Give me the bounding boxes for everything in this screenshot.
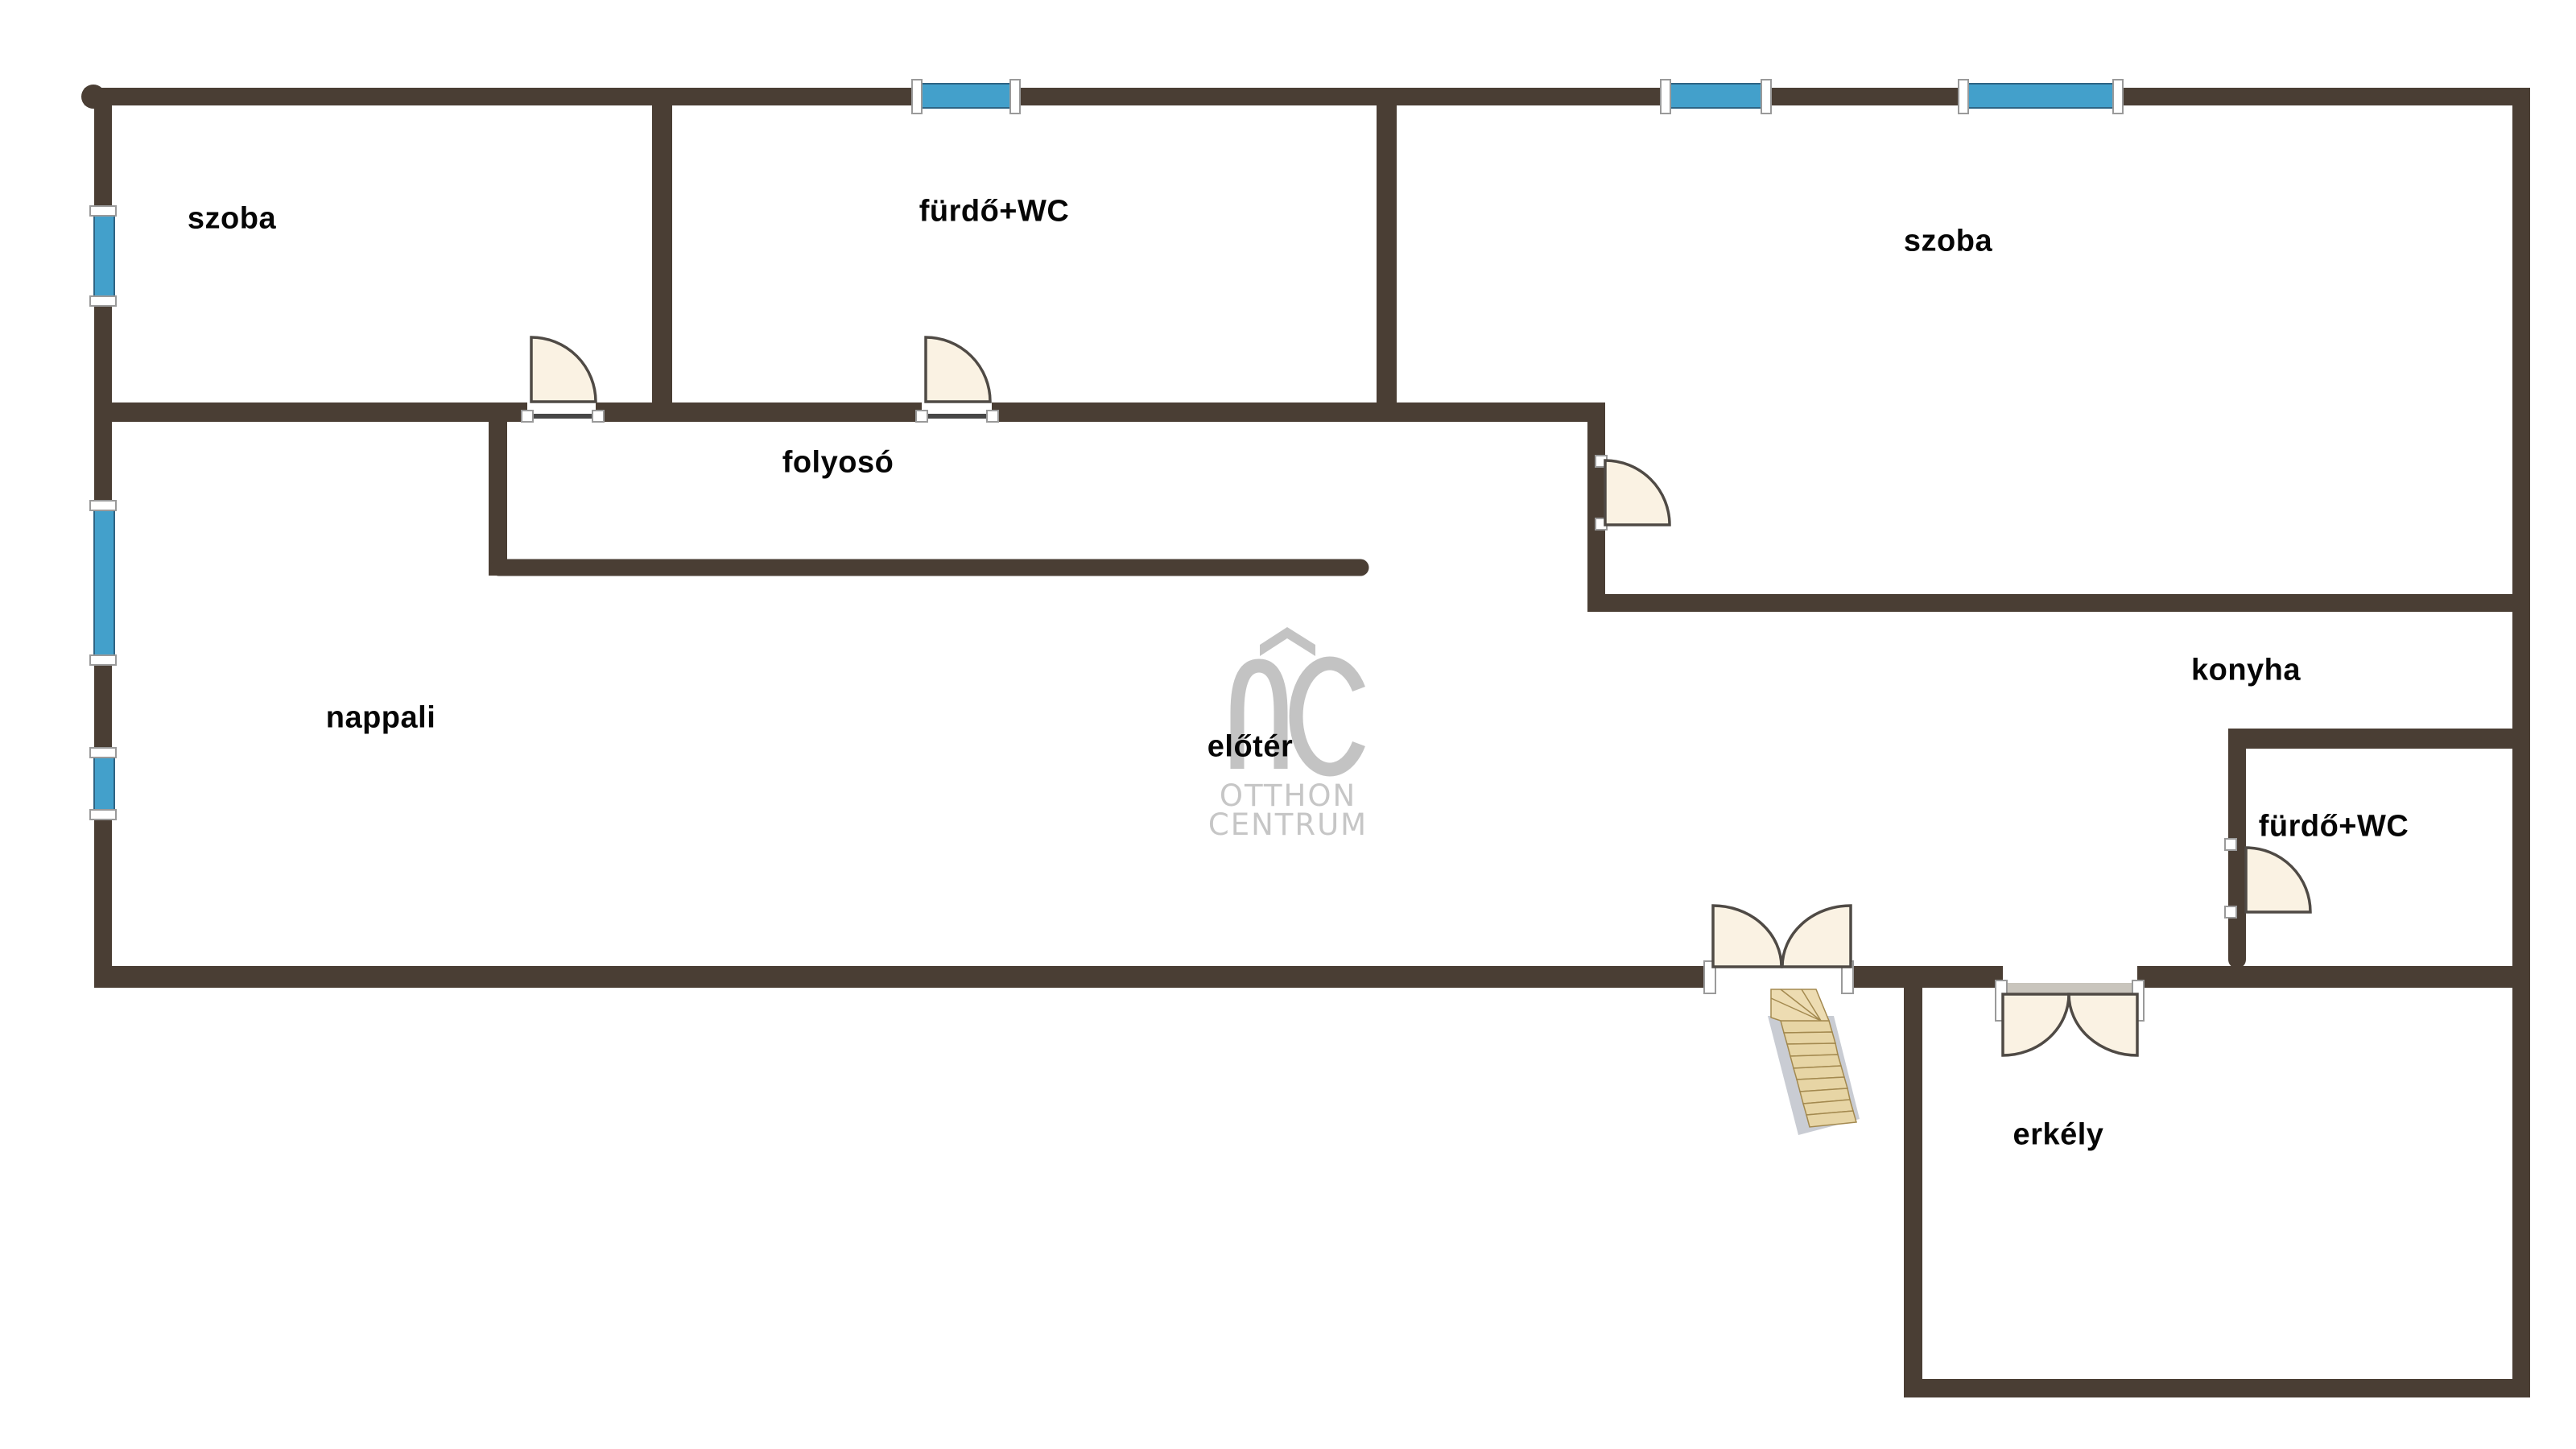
staircase (1768, 989, 1860, 1135)
room-label-furdo-wc-top: fürdő+WC (919, 195, 1070, 229)
bracket (2225, 839, 2236, 850)
window-nappali-left-2 (94, 510, 114, 655)
wall-balcony-bottom (1904, 1379, 2530, 1397)
logo-word-centrum: CENTRUM (1208, 807, 1368, 842)
wall-corridor-left (489, 402, 507, 576)
room-label-erkely: erkély (2013, 1118, 2104, 1153)
room-label-furdo-wc-bottom: fürdő+WC (2259, 810, 2409, 844)
bracket (90, 296, 116, 306)
bracket (1661, 80, 1670, 114)
wall-top (85, 88, 2530, 105)
door-entry-right-leaf (1782, 906, 1851, 967)
threshold-bathroom-top-door (922, 414, 992, 419)
bracket (592, 411, 604, 422)
window-bathroom-top (922, 84, 1010, 108)
room-label-nappali: nappali (326, 701, 436, 736)
door-balcony-left-leaf (2003, 994, 2069, 1055)
bracket (916, 411, 927, 422)
bracket (90, 748, 116, 758)
wall-szoba-left-right-side (652, 105, 672, 420)
bracket (1959, 80, 1968, 114)
bracket (2113, 80, 2123, 114)
room-label-szoba-left: szoba (188, 202, 276, 237)
bracket (1761, 80, 1771, 114)
floor-plan: OTTHON CENTRUM (0, 0, 2576, 1449)
jamb-brackets (90, 80, 2236, 1021)
wall-bathroom-bottom-left-cap (2228, 951, 2246, 968)
window-nappali-left-1 (94, 216, 114, 296)
stair-tread (1784, 1032, 1835, 1044)
bracket (90, 206, 116, 216)
stair-tread (1781, 1021, 1832, 1033)
bracket (90, 501, 116, 510)
door-szoba-right (1605, 460, 1670, 525)
window-szoba-right-2 (1968, 84, 2113, 108)
wall-bottom-right-segment (2137, 966, 2522, 988)
room-label-szoba-right: szoba (1904, 225, 1992, 259)
threshold-szoba-left-door (527, 414, 596, 419)
wall-balcony-left (1904, 988, 1922, 1397)
bracket (987, 411, 998, 422)
wall-bottom-left-segment (94, 966, 1713, 988)
logo-roof-chevron-icon (1260, 627, 1315, 656)
wall-corridor-top-b (596, 402, 922, 422)
wall-corridor-top-a (94, 402, 527, 422)
room-label-eloter: előtér (1207, 730, 1293, 765)
door-bathroom-top (926, 337, 990, 402)
wall-kitchen-top (1587, 594, 2530, 612)
window-nappali-left-3 (94, 758, 114, 810)
wall-bottom-middle-segment (1851, 966, 2003, 988)
wall-bathroom-top-right-side (1377, 105, 1397, 420)
bracket (90, 810, 116, 819)
door-balcony-right-leaf (2069, 994, 2137, 1055)
wall-bathroom-bottom-top (2228, 729, 2530, 749)
door-bathroom-bottom (2246, 848, 2310, 912)
door-entry-left-leaf (1713, 906, 1781, 967)
room-label-folyoso: folyosó (782, 446, 894, 481)
bracket (522, 411, 533, 422)
logo-letter-c-arc (1296, 663, 1359, 770)
bracket (912, 80, 922, 114)
window-szoba-right-1 (1670, 84, 1761, 108)
room-label-konyha: konyha (2191, 654, 2301, 688)
bracket (90, 655, 116, 665)
wall-corridor-top-c (992, 402, 1605, 422)
door-szoba-left (531, 337, 596, 402)
bracket (1010, 80, 1020, 114)
bracket (2225, 906, 2236, 918)
wall-szoba-right-left-side (1587, 402, 1605, 612)
